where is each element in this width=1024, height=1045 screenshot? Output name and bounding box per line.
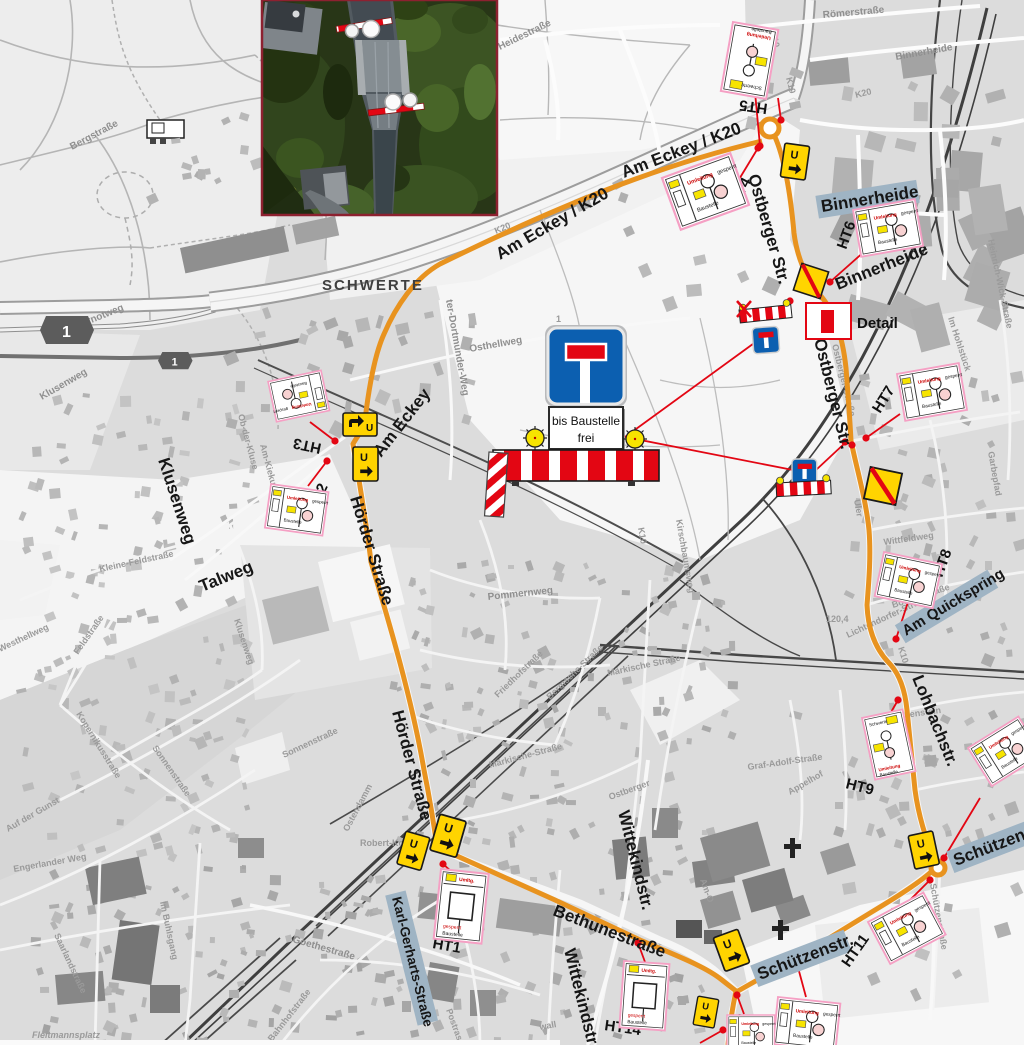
svg-text:1: 1 xyxy=(62,324,71,341)
svg-text:1: 1 xyxy=(172,357,178,369)
svg-text:bis Baustelle: bis Baustelle xyxy=(552,414,620,428)
svg-text:SCHWERTE: SCHWERTE xyxy=(322,277,424,294)
svg-text:Fleitmannsplatz: Fleitmannsplatz xyxy=(32,1030,101,1040)
svg-text:120,4: 120,4 xyxy=(826,614,849,624)
svg-text:1: 1 xyxy=(556,314,561,324)
svg-text:frei: frei xyxy=(578,431,595,445)
svg-text:Detail: Detail xyxy=(857,315,898,332)
